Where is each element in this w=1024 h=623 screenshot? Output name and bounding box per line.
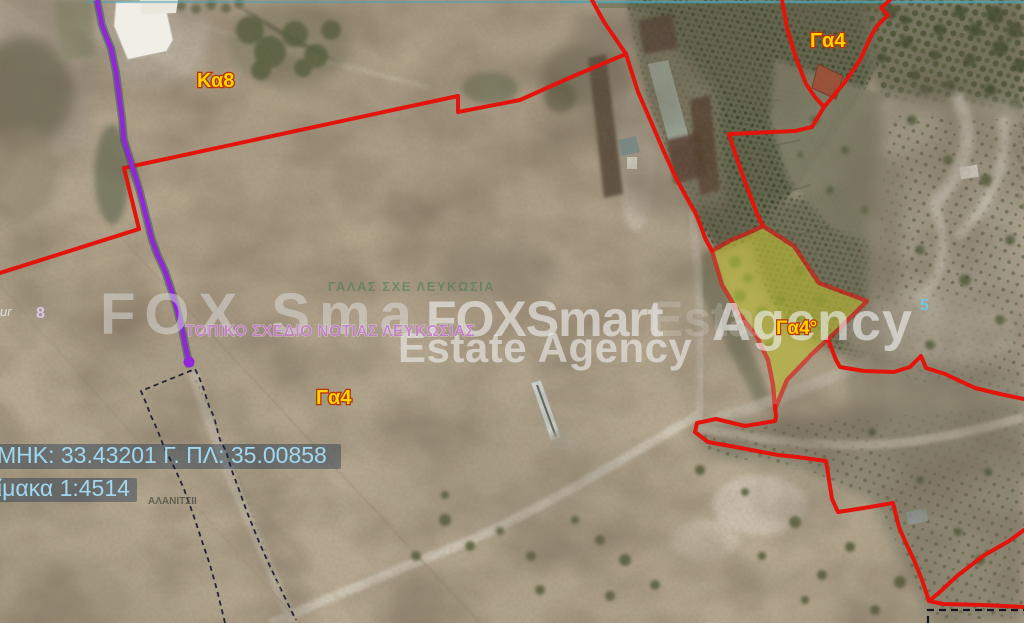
svg-text:ΓΑΛΑΣ ΣΧΕ ΛΕΥΚΩΣΙΑ: ΓΑΛΑΣ ΣΧΕ ΛΕΥΚΩΣΙΑ [328,279,495,294]
svg-text:Γα4: Γα4 [810,30,846,52]
svg-text:Γα4: Γα4 [316,387,352,409]
svg-text:ΜΗΚ: 33.43201 Γ. ΠΛ: 35.00858: ΜΗΚ: 33.43201 Γ. ΠΛ: 35.00858 [0,442,327,468]
svg-text:5: 5 [920,297,929,314]
svg-text:Κα8: Κα8 [197,70,234,92]
svg-text:ίμακα 1:4514: ίμακα 1:4514 [0,475,130,501]
svg-text:Γα4°: Γα4° [776,318,817,339]
svg-text:8: 8 [36,305,45,322]
svg-text:ur: ur [0,304,12,319]
svg-text:ΑΛΑΝΙΤΣΙΙ: ΑΛΑΝΙΤΣΙΙ [148,496,197,507]
svg-text:ΤΟΠΙΚΟ ΣΧΕΔΙΟ ΝΟΤΙΑΣ ΛΕΥΚΩΣΙΑΣ: ΤΟΠΙΚΟ ΣΧΕΔΙΟ ΝΟΤΙΑΣ ΛΕΥΚΩΣΙΑΣ [185,323,475,340]
